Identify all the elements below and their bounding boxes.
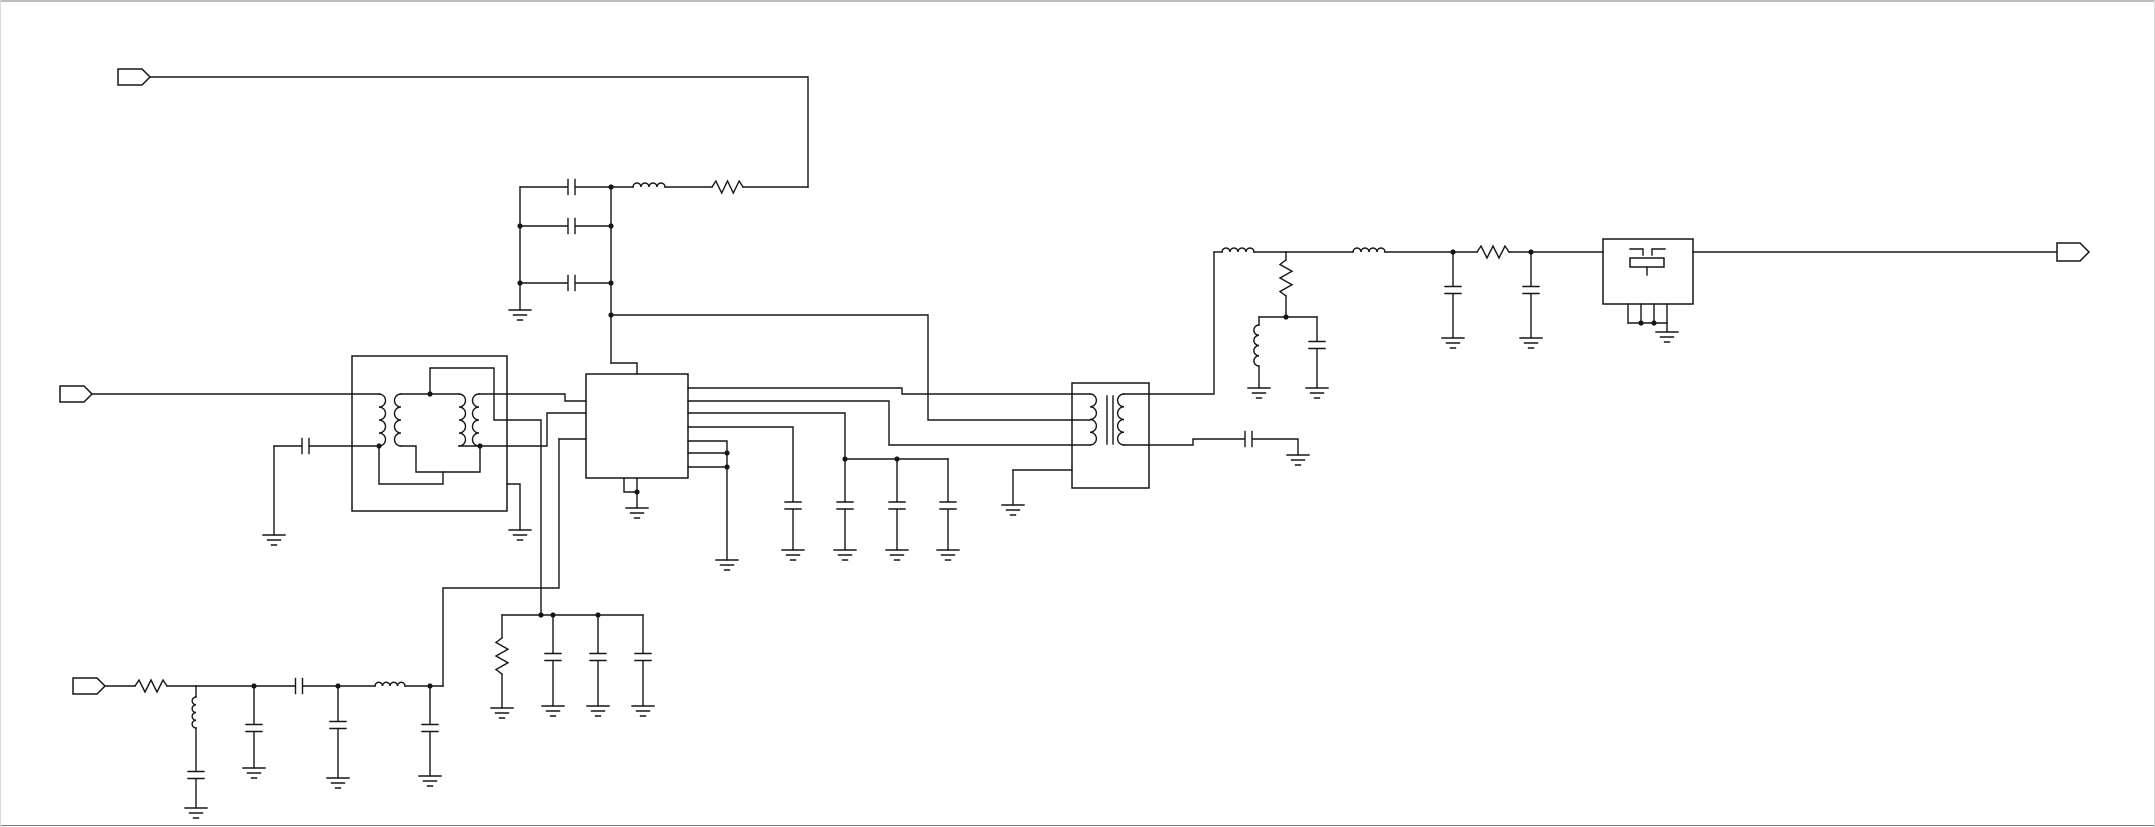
junction-dot-1 bbox=[608, 184, 613, 189]
junction-dot-3 bbox=[608, 223, 613, 228]
inductor-top-filter[interactable] bbox=[633, 183, 665, 187]
junction-dot-22 bbox=[1450, 249, 1455, 254]
junction-dot-14 bbox=[634, 489, 639, 494]
wire-69[interactable] bbox=[1124, 439, 1245, 445]
ground-symbol-18[interactable] bbox=[1002, 505, 1024, 515]
ground-symbol-10[interactable] bbox=[185, 808, 207, 818]
junction-dot-17 bbox=[427, 683, 432, 688]
port-bottom-left[interactable] bbox=[73, 678, 105, 694]
wire-16[interactable] bbox=[430, 368, 541, 615]
junction-dot-25 bbox=[1651, 320, 1656, 325]
junction-dot-10 bbox=[842, 456, 847, 461]
ground-symbol-17[interactable] bbox=[632, 706, 654, 716]
wire-22[interactable] bbox=[401, 446, 480, 472]
port-top-left[interactable] bbox=[118, 69, 150, 85]
resistor-bottom-input[interactable] bbox=[135, 680, 167, 692]
wire-32[interactable] bbox=[688, 413, 845, 459]
resistor-bias-bank[interactable] bbox=[496, 638, 508, 674]
saw-filter-box[interactable] bbox=[1603, 239, 1693, 304]
wire-1[interactable] bbox=[150, 77, 808, 187]
balun-winding-1[interactable] bbox=[379, 394, 386, 446]
inductor-output-chain-2[interactable] bbox=[1353, 248, 1385, 252]
ic-box[interactable] bbox=[586, 374, 688, 478]
junction-dot-13 bbox=[724, 464, 729, 469]
ground-symbol-11[interactable] bbox=[243, 768, 265, 778]
junction-dot-4 bbox=[517, 280, 522, 285]
ground-symbol-14[interactable] bbox=[491, 708, 513, 718]
wire-25[interactable] bbox=[507, 484, 520, 530]
saw-resonator-rect bbox=[1630, 258, 1664, 267]
junction-dot-2 bbox=[517, 223, 522, 228]
inductor-bottom-input[interactable] bbox=[375, 682, 405, 686]
wire-24[interactable] bbox=[480, 413, 586, 446]
ground-symbol-22[interactable] bbox=[1442, 338, 1464, 348]
wire-42[interactable] bbox=[688, 441, 727, 560]
ground-symbol-9[interactable] bbox=[937, 550, 959, 560]
wire-70[interactable] bbox=[1253, 439, 1299, 455]
junction-dot-7 bbox=[427, 391, 432, 396]
ground-symbol-2[interactable] bbox=[263, 535, 285, 545]
inductor-shunt-input[interactable] bbox=[192, 697, 196, 728]
ground-symbol-12[interactable] bbox=[327, 778, 349, 788]
wire-31[interactable] bbox=[688, 401, 1090, 445]
junction-dot-20 bbox=[595, 612, 600, 617]
ground-symbol-15[interactable] bbox=[542, 706, 564, 716]
ground-symbol-1[interactable] bbox=[509, 310, 531, 320]
schematic-canvas bbox=[0, 0, 2155, 827]
resistor-output-chain[interactable] bbox=[1477, 246, 1509, 258]
inductor-shunt-match[interactable] bbox=[1254, 325, 1259, 366]
ground-symbol-16[interactable] bbox=[587, 706, 609, 716]
junction-dot-18 bbox=[538, 612, 543, 617]
junction-dot-6 bbox=[608, 312, 613, 317]
wire-21[interactable] bbox=[379, 446, 443, 484]
schematic-page bbox=[0, 0, 2155, 827]
transformer-primary-winding[interactable] bbox=[1090, 394, 1096, 445]
junction-dot-12 bbox=[724, 450, 729, 455]
ground-symbol-3[interactable] bbox=[509, 530, 531, 540]
junction-dot-21 bbox=[1283, 314, 1288, 319]
inductor-output-chain-1[interactable] bbox=[1222, 248, 1254, 252]
ground-symbol-20[interactable] bbox=[1306, 388, 1328, 398]
wire-13[interactable] bbox=[611, 363, 637, 374]
junction-dot-15 bbox=[251, 683, 256, 688]
junction-dot-8 bbox=[376, 443, 381, 448]
wire-17[interactable] bbox=[479, 394, 586, 401]
ground-symbol-6[interactable] bbox=[782, 550, 804, 560]
wire-30[interactable] bbox=[688, 388, 1090, 394]
port-mid-left[interactable] bbox=[60, 386, 92, 402]
resistor-top-filter[interactable] bbox=[712, 181, 743, 193]
saw-idt-right bbox=[1652, 249, 1665, 255]
saw-idt-left bbox=[1630, 249, 1643, 255]
wire-28[interactable] bbox=[624, 478, 637, 492]
junction-dot-24 bbox=[1638, 320, 1643, 325]
ground-symbol-8[interactable] bbox=[886, 550, 908, 560]
junction-dot-9 bbox=[477, 443, 482, 448]
balun-winding-3[interactable] bbox=[459, 394, 466, 446]
balun-winding-2[interactable] bbox=[395, 394, 401, 446]
port-output-right[interactable] bbox=[2057, 243, 2089, 261]
resistor-shunt-match[interactable] bbox=[1280, 260, 1292, 296]
ground-symbol-23[interactable] bbox=[1520, 338, 1542, 348]
wire-12[interactable] bbox=[611, 315, 1090, 420]
balun-winding-4[interactable] bbox=[473, 394, 479, 446]
junction-dot-23 bbox=[1528, 249, 1533, 254]
junction-dot-16 bbox=[335, 683, 340, 688]
wire-40[interactable] bbox=[688, 427, 793, 502]
transformer-secondary-winding[interactable] bbox=[1118, 394, 1124, 445]
ground-symbol-7[interactable] bbox=[834, 550, 856, 560]
ground-symbol-13[interactable] bbox=[419, 776, 441, 786]
junction-dot-19 bbox=[550, 612, 555, 617]
wire-68[interactable] bbox=[1124, 252, 1214, 394]
junction-dot-5 bbox=[608, 280, 613, 285]
rf-transformer-box[interactable] bbox=[1072, 383, 1149, 488]
ground-symbol-21[interactable] bbox=[1287, 455, 1309, 465]
ground-symbol-4[interactable] bbox=[626, 508, 648, 518]
ground-symbol-24[interactable] bbox=[1656, 332, 1678, 342]
junction-dot-11 bbox=[894, 456, 899, 461]
ground-symbol-5[interactable] bbox=[716, 560, 738, 570]
ground-symbol-19[interactable] bbox=[1248, 388, 1270, 398]
